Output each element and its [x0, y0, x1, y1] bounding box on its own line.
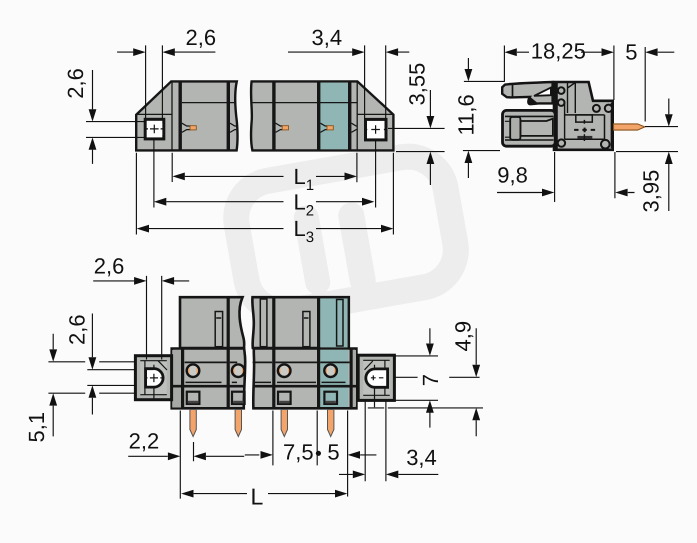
svg-text:3,4: 3,4	[312, 25, 343, 50]
svg-text:7: 7	[418, 374, 443, 386]
svg-text:5,1: 5,1	[24, 412, 49, 443]
svg-text:L: L	[251, 484, 264, 510]
svg-text:11,6: 11,6	[454, 94, 479, 135]
svg-text:3,55: 3,55	[405, 63, 430, 106]
svg-text:7,5: 7,5	[283, 440, 314, 465]
svg-text:18,25: 18,25	[531, 39, 586, 64]
svg-text:2,6: 2,6	[65, 314, 90, 345]
svg-text:2,6: 2,6	[63, 68, 88, 99]
svg-text:9,8: 9,8	[497, 163, 528, 188]
svg-text:5: 5	[327, 440, 339, 465]
svg-text:5: 5	[625, 40, 637, 65]
svg-text:2,6: 2,6	[94, 254, 125, 279]
svg-text:4,9: 4,9	[451, 321, 476, 352]
svg-text:2,6: 2,6	[186, 25, 217, 50]
svg-text:2,2: 2,2	[129, 428, 160, 453]
svg-text:3,95: 3,95	[639, 170, 664, 213]
svg-text:3,4: 3,4	[406, 445, 437, 470]
